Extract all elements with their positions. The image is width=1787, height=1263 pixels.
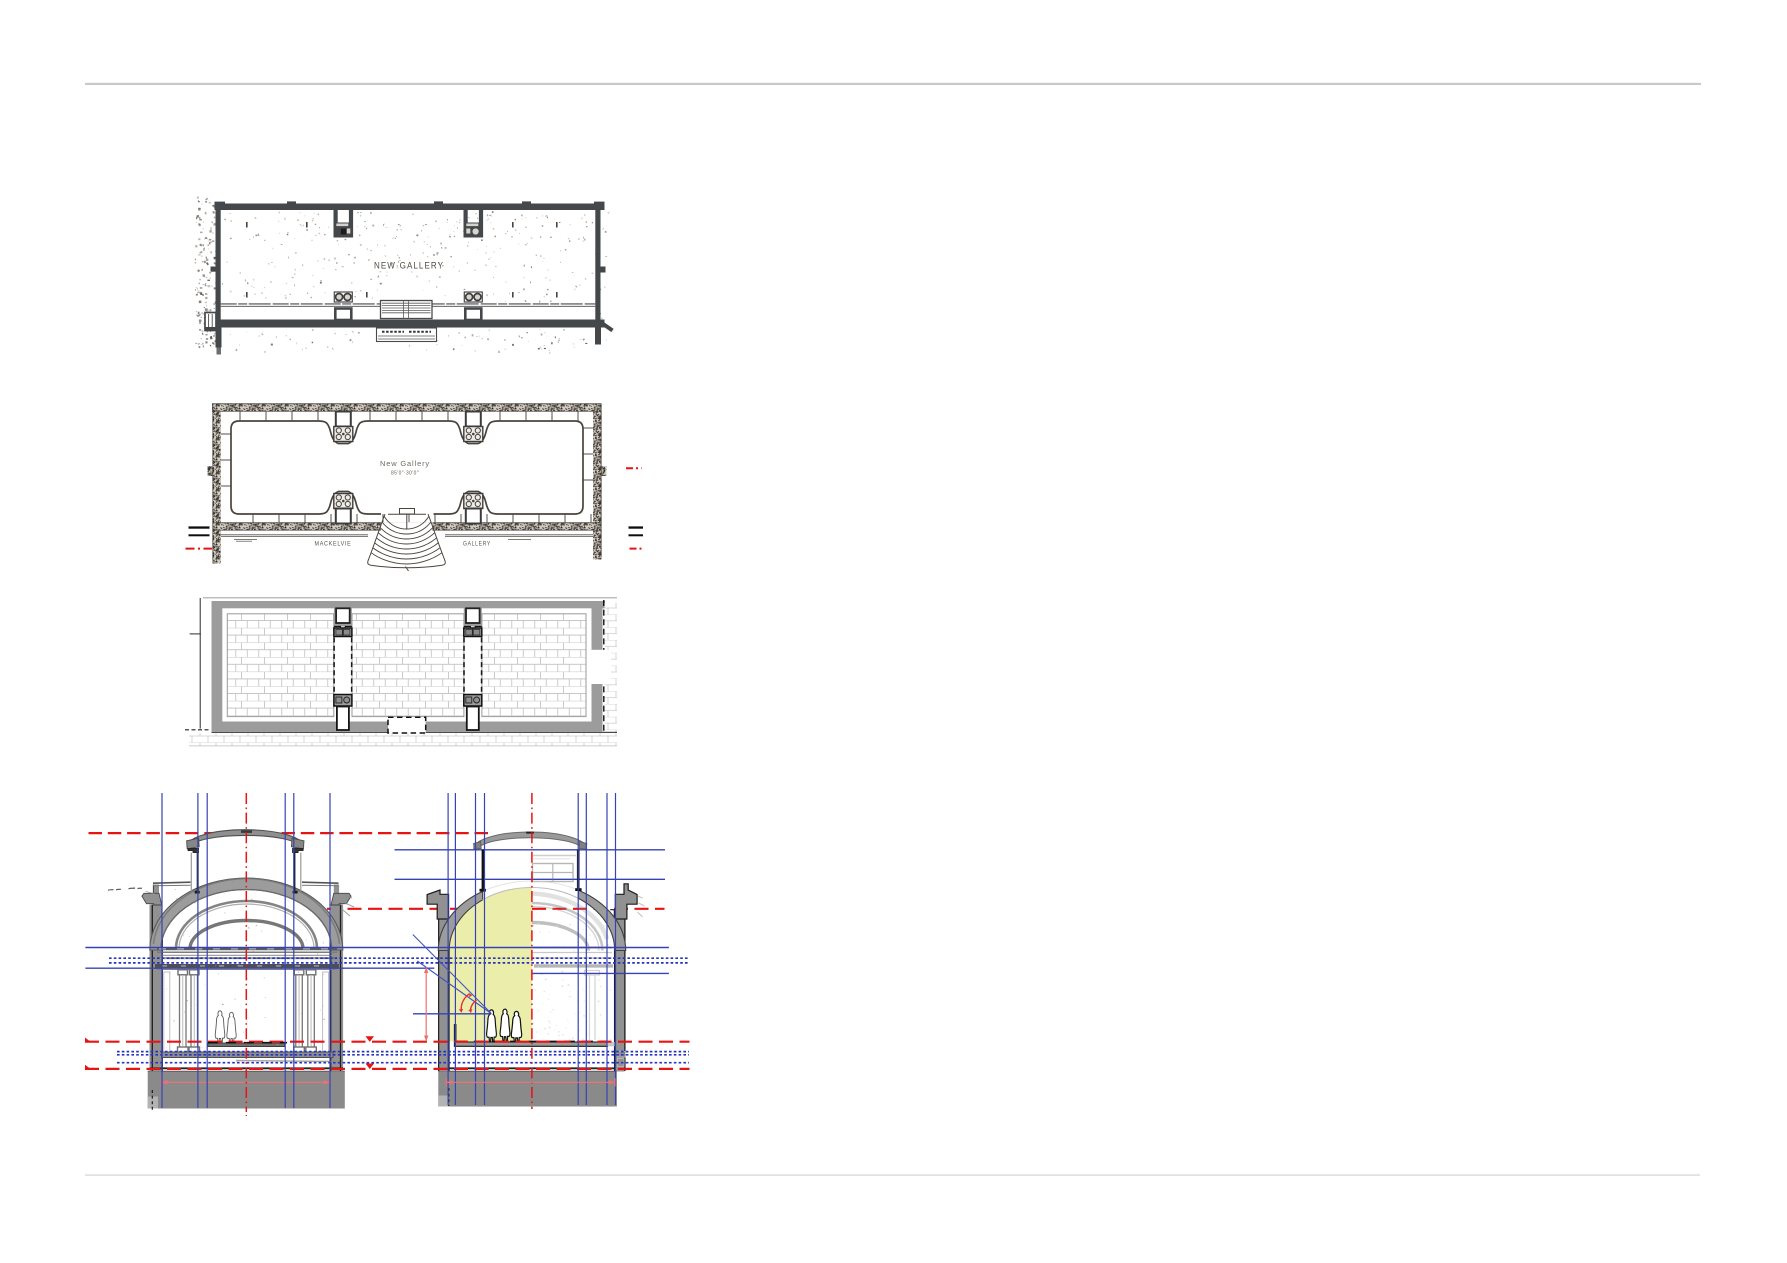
svg-text:85'0"·30'0": 85'0"·30'0" <box>391 471 419 477</box>
svg-text:MACKELVIE: MACKELVIE <box>315 541 352 548</box>
svg-text:GALLERY: GALLERY <box>463 541 491 548</box>
svg-text:New Gallery: New Gallery <box>380 461 430 468</box>
svg-text:NEW·GALLERY: NEW·GALLERY <box>374 261 444 271</box>
